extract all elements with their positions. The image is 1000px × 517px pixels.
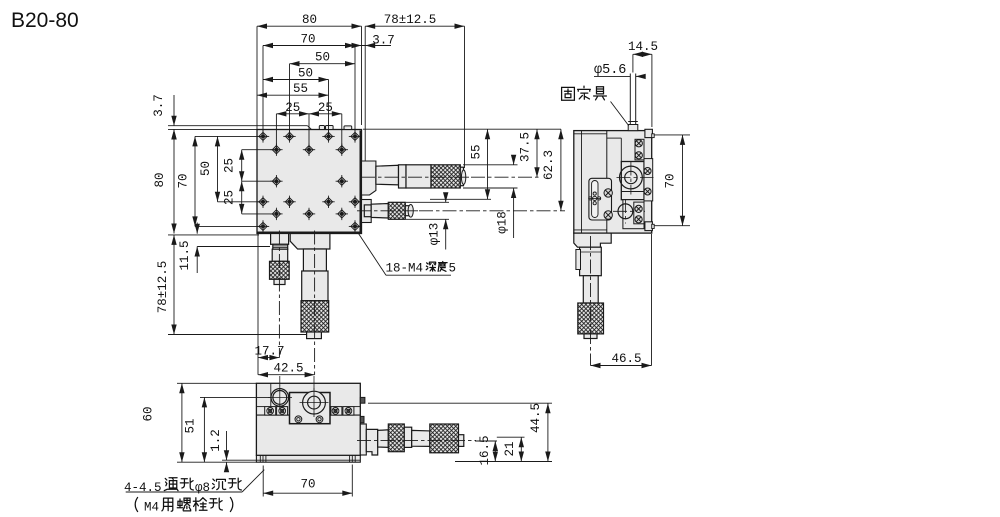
- svg-text:φ13: φ13: [428, 223, 442, 246]
- svg-text:70: 70: [300, 33, 315, 47]
- svg-text:51: 51: [184, 418, 198, 433]
- svg-text:62.3: 62.3: [542, 150, 556, 180]
- svg-text:11.5: 11.5: [178, 240, 192, 270]
- svg-text:φ18: φ18: [495, 211, 509, 234]
- svg-text:78±12.5: 78±12.5: [156, 261, 170, 314]
- svg-text:78±12.5: 78±12.5: [384, 13, 437, 27]
- svg-text:21: 21: [503, 441, 517, 456]
- svg-text:50: 50: [199, 161, 213, 176]
- svg-text:70: 70: [177, 173, 191, 188]
- svg-text:14.5: 14.5: [628, 40, 658, 54]
- svg-text:17.7: 17.7: [254, 344, 284, 358]
- svg-text:16.5: 16.5: [478, 435, 492, 465]
- svg-text:5: 5: [449, 262, 457, 276]
- svg-text:4-4.5: 4-4.5: [124, 481, 162, 495]
- svg-text:3.7: 3.7: [152, 94, 166, 117]
- svg-text:46.5: 46.5: [611, 352, 641, 366]
- svg-text:60: 60: [142, 406, 156, 421]
- svg-text:55: 55: [470, 144, 484, 159]
- svg-text:25: 25: [223, 190, 237, 205]
- svg-text:3.7: 3.7: [372, 34, 395, 48]
- svg-text:37.5: 37.5: [519, 132, 533, 162]
- svg-text:φ5.6: φ5.6: [594, 63, 626, 78]
- svg-text:80: 80: [153, 172, 167, 187]
- svg-text:18-M4: 18-M4: [386, 262, 424, 276]
- svg-text:50: 50: [298, 67, 313, 81]
- svg-text:44.5: 44.5: [529, 403, 543, 433]
- svg-text:25: 25: [285, 101, 300, 115]
- svg-text:70: 70: [664, 173, 678, 188]
- svg-text:55: 55: [293, 82, 308, 96]
- svg-text:B20-80: B20-80: [11, 9, 79, 32]
- svg-text:M4: M4: [144, 501, 159, 515]
- svg-text:25: 25: [318, 101, 333, 115]
- svg-text:50: 50: [315, 51, 330, 65]
- svg-text:1.2: 1.2: [209, 429, 223, 452]
- svg-text:42.5: 42.5: [273, 361, 303, 375]
- svg-text:φ8: φ8: [195, 481, 210, 495]
- svg-text:80: 80: [302, 13, 317, 27]
- svg-text:25: 25: [223, 158, 237, 173]
- svg-text:70: 70: [300, 478, 315, 492]
